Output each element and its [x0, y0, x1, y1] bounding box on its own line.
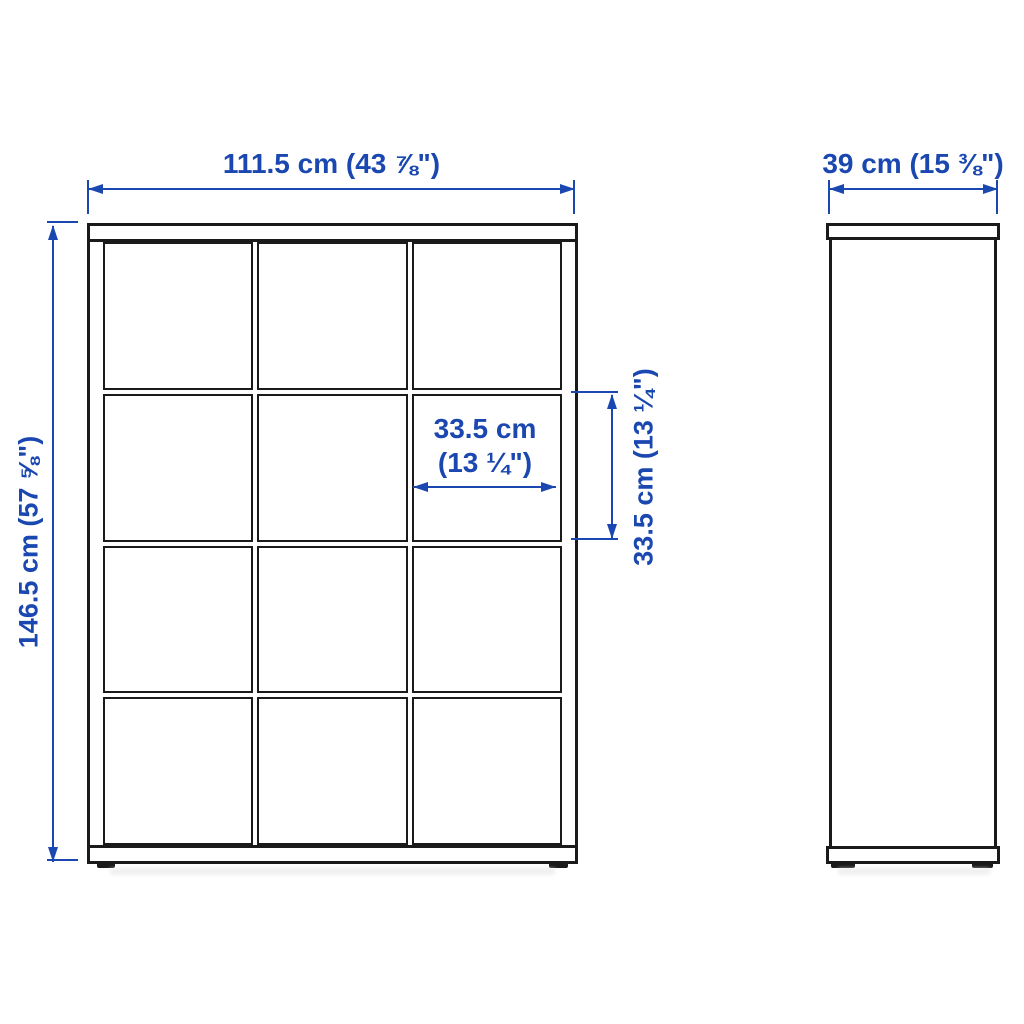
grid-cell [103, 697, 253, 845]
cube-height-dimension-line [611, 395, 613, 539]
height-dimension-line [52, 226, 54, 862]
cube-height-label: 33.5 cm (13 ¼") [628, 368, 659, 565]
arrow-up-icon [48, 225, 58, 240]
grid-cell [412, 546, 562, 694]
arrow-left-icon [829, 184, 844, 194]
front-top-panel [90, 226, 575, 242]
grid-cell [257, 242, 407, 390]
front-grid [103, 242, 562, 845]
cube-width-label-line2: (13 ¼") [410, 447, 560, 479]
width-dimension-line [88, 188, 575, 190]
width-dimension-label: 111.5 cm (43 ⅞") [88, 148, 575, 180]
grid-cell [103, 546, 253, 694]
grid-cell [103, 242, 253, 390]
arrow-left-icon [413, 482, 428, 492]
side-view-body [829, 240, 997, 846]
front-right-foot [549, 862, 568, 868]
cube-height-tick-top [571, 391, 618, 393]
front-bottom-panel [90, 845, 575, 861]
cube-height-tick-bottom [571, 538, 618, 540]
height-tick-top [47, 221, 78, 223]
arrow-left-icon [88, 184, 103, 194]
depth-extension-line-left [828, 180, 830, 214]
cube-width-dimension-line [413, 486, 556, 488]
front-floor-shadow [110, 869, 555, 874]
side-left-foot [831, 862, 855, 868]
side-floor-shadow [838, 869, 990, 874]
depth-dimension-label: 39 cm (15 ⅜") [813, 148, 1013, 180]
width-extension-line-right [573, 180, 575, 214]
arrow-down-icon [607, 524, 617, 539]
grid-cell [103, 394, 253, 542]
arrow-right-icon [541, 482, 556, 492]
side-view-top-panel [826, 223, 1000, 240]
grid-cell [257, 394, 407, 542]
width-extension-line-left [87, 180, 89, 214]
front-left-foot [97, 862, 115, 868]
side-right-foot [972, 862, 993, 868]
depth-dimension-line [829, 188, 998, 190]
depth-extension-line-right [996, 180, 998, 214]
grid-cell [257, 546, 407, 694]
grid-cell [412, 697, 562, 845]
grid-cell [257, 697, 407, 845]
height-tick-bottom [47, 859, 78, 861]
grid-cell [412, 242, 562, 390]
arrow-up-icon [607, 394, 617, 409]
cube-width-label-line1: 33.5 cm [410, 413, 560, 445]
front-view [87, 223, 578, 864]
height-dimension-label: 146.5 cm (57 ⅝") [13, 436, 44, 648]
product-dimension-diagram: 111.5 cm (43 ⅞") 39 cm (15 ⅜") 146.5 cm … [0, 0, 1024, 1024]
